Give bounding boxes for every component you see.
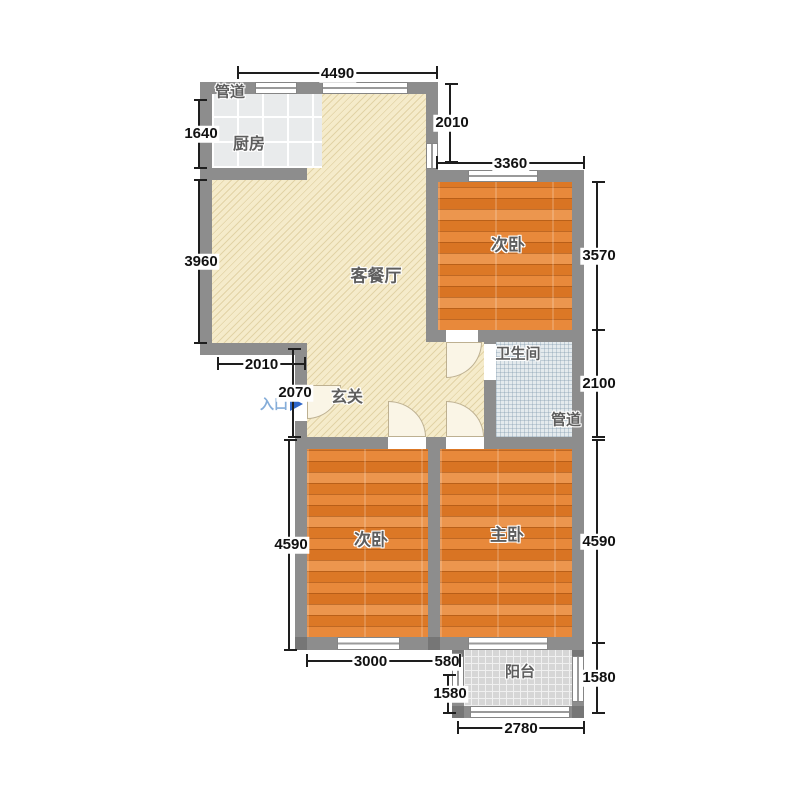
dimension-balcony-left-height-value: 1580 xyxy=(431,686,468,703)
bedroom-left-door-opening xyxy=(388,437,426,449)
dimension-master-height: 4590 xyxy=(596,440,598,643)
kitchen-label: 厨房 xyxy=(233,130,265,154)
balcony-sliding-door xyxy=(468,637,548,650)
wall-left-upper xyxy=(200,82,212,355)
dimension-bedroom-top-height: 3570 xyxy=(596,182,598,330)
dimension-living-left-height: 3960 xyxy=(198,180,200,343)
dimension-balcony-width-value: 2780 xyxy=(502,721,539,738)
dimension-gap-width: 580 xyxy=(434,660,460,662)
living-window xyxy=(322,82,408,94)
wall-bedroom-divider xyxy=(428,449,440,637)
dimension-bedroom-left-height-value: 4590 xyxy=(272,537,309,554)
floor-plan: 管道 厨房 客餐厅 次卧 卫生间 管道 玄关 次卧 主卧 阳台 入口 4490 … xyxy=(0,0,800,800)
dimension-kitchen-height: 1640 xyxy=(198,100,200,168)
bedroom-left-window xyxy=(337,637,400,650)
bedroom-left-label: 次卧 xyxy=(354,526,388,551)
bedroom-top-label: 次卧 xyxy=(491,231,525,256)
dimension-living-left-height-value: 3960 xyxy=(182,253,219,270)
dimension-master-height-value: 4590 xyxy=(580,533,617,550)
bedroom-top-floor xyxy=(438,182,572,330)
bedroom-top-door-opening xyxy=(446,330,478,342)
dimension-entry-height-value: 2070 xyxy=(276,385,313,402)
wall-kitchen-bottom xyxy=(212,168,307,180)
master-bedroom-label: 主卧 xyxy=(490,521,524,546)
dimension-living-right-height: 2010 xyxy=(449,84,451,162)
dimension-bedroom-left-height: 4590 xyxy=(288,440,290,650)
dimension-balcony-right-height: 1580 xyxy=(596,643,598,713)
dimension-balcony-right-height-value: 1580 xyxy=(580,670,617,687)
master-door-opening xyxy=(446,437,484,449)
dimension-bedroom-top-height-value: 3570 xyxy=(580,248,617,265)
dimension-bedroom-left-width: 3000 xyxy=(307,660,434,662)
hallway-label: 玄关 xyxy=(331,383,363,407)
dimension-living-right-height-value: 2010 xyxy=(433,115,470,132)
bathroom-door-opening xyxy=(484,344,496,380)
dimension-bedroom-top-width: 3360 xyxy=(437,162,584,164)
dimension-top-width-value: 4490 xyxy=(319,66,356,83)
wall-cap xyxy=(428,637,440,650)
bathroom-label: 卫生间 xyxy=(495,343,540,364)
dimension-bedroom-top-width-value: 3360 xyxy=(492,156,529,173)
wall-cap xyxy=(572,706,584,718)
dimension-balcony-left-height: 1580 xyxy=(447,675,449,713)
kitchen-floor xyxy=(212,94,322,168)
duct-top-label: 管道 xyxy=(215,81,245,102)
dimension-gap-width-value: 580 xyxy=(432,654,461,671)
dimension-balcony-width: 2780 xyxy=(458,727,584,729)
dimension-top-width: 4490 xyxy=(238,72,437,74)
dimension-entry-width-value: 2010 xyxy=(243,357,280,374)
dimension-bathroom-height: 2100 xyxy=(596,330,598,437)
wall-mid xyxy=(295,437,584,449)
dimension-bedroom-left-width-value: 3000 xyxy=(352,654,389,671)
duct-right-label: 管道 xyxy=(551,409,581,430)
dimension-kitchen-height-value: 1640 xyxy=(182,126,219,143)
living-dining-label: 客餐厅 xyxy=(351,262,402,287)
balcony-label: 阳台 xyxy=(505,661,535,682)
balcony-window-bottom xyxy=(470,706,570,718)
kitchen-window xyxy=(255,82,297,94)
dimension-entry-height: 2070 xyxy=(292,349,294,437)
dimension-bathroom-height-value: 2100 xyxy=(580,375,617,392)
